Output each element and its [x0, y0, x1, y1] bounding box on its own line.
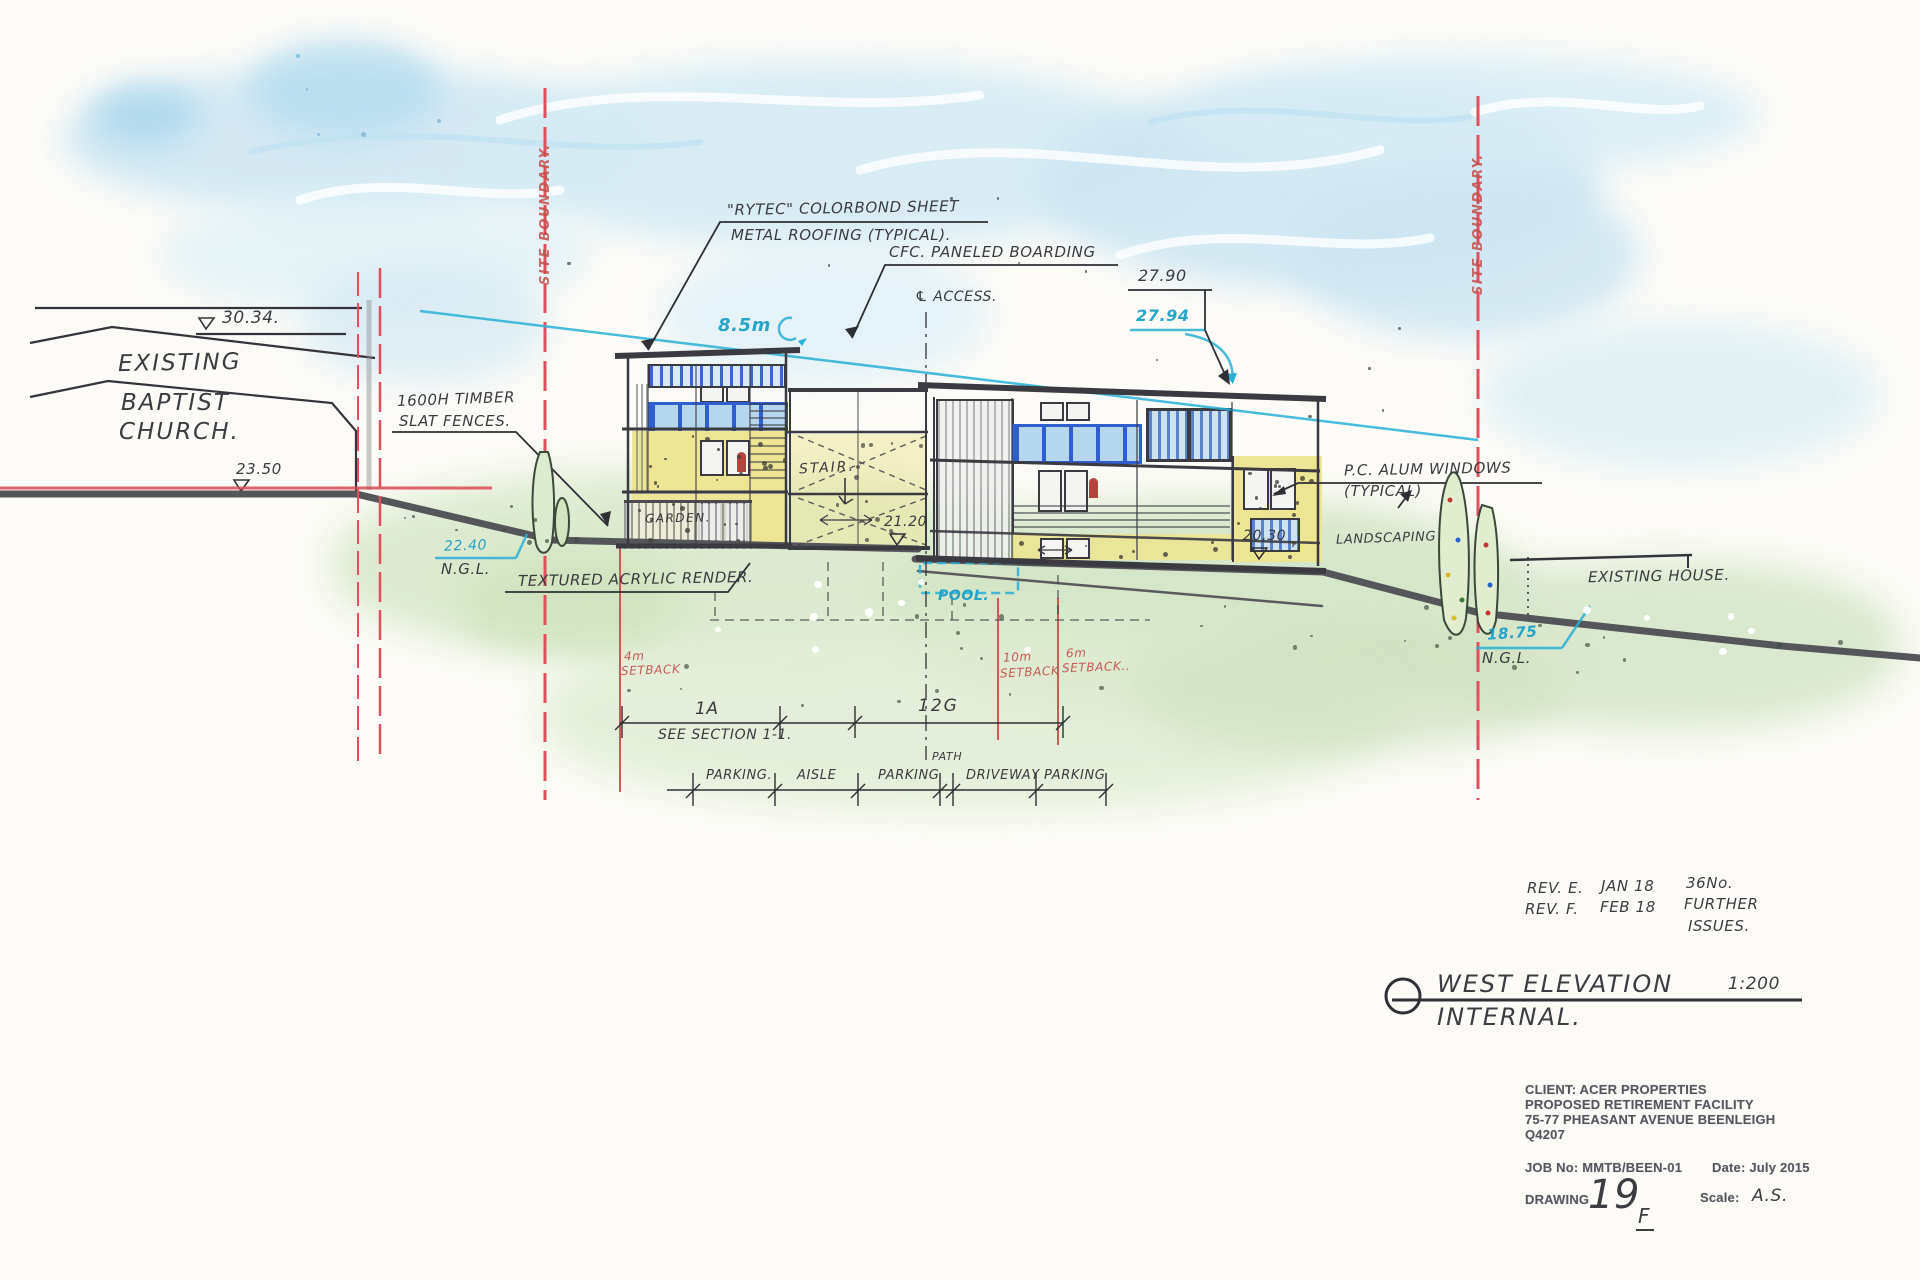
- paint-speckle: [574, 537, 579, 542]
- ground-wash: [1430, 560, 1900, 730]
- building2-clad-band: [936, 399, 1014, 561]
- titleblock-scale-label: Scale:: [1700, 1190, 1740, 1205]
- paint-speckle: [997, 197, 999, 199]
- church-ground-level: 23.50: [236, 460, 282, 478]
- revision-0-rev: REV. E.: [1527, 879, 1583, 897]
- paint-speckle: [1018, 262, 1020, 264]
- paint-speckle: [1424, 605, 1429, 610]
- paint-speckle: [534, 518, 537, 521]
- paint-speckle: [1085, 270, 1088, 273]
- pool-label: POOL.: [938, 588, 989, 604]
- windows-note-line2: (TYPICAL): [1344, 482, 1422, 500]
- setback-6m-line1: 6m: [1066, 646, 1087, 661]
- sky-streaks: [250, 111, 1470, 152]
- revision-0-date: JAN 18: [1601, 877, 1654, 895]
- roof-note-line1: "RYTEC" COLORBOND SHEET: [727, 197, 959, 219]
- paint-speckle: [684, 664, 689, 669]
- building2-mid-window: [1038, 470, 1062, 512]
- building2-panel-window: [1243, 468, 1269, 510]
- basement-outline: [710, 562, 1150, 620]
- drawing-scale: 1:200: [1728, 974, 1780, 994]
- revision-1-note2: ISSUES.: [1688, 917, 1750, 935]
- setback-6m-line2: SETBACK..: [1062, 659, 1131, 675]
- sky-wash: [300, 265, 550, 385]
- titleblock-drawing-label: DRAWING: [1525, 1192, 1589, 1207]
- ground-wash: [460, 550, 680, 650]
- paint-speckle: [545, 539, 549, 543]
- paint-speckle: [1308, 415, 1311, 418]
- blue-arrowhead: [1225, 373, 1237, 384]
- sky-wash: [1180, 55, 1760, 175]
- titleblock-project: PROPOSED RETIREMENT FACILITY: [1525, 1097, 1754, 1112]
- paint-speckle: [510, 505, 513, 508]
- church-name-line1: EXISTING: [118, 349, 242, 377]
- height-envelope-label: 8.5m: [718, 315, 771, 336]
- setback-10m-line1: 10m: [1003, 649, 1032, 664]
- stair-label: STAIR.: [799, 459, 856, 478]
- paint-speckle: [814, 581, 821, 588]
- blue-arrowhead: [798, 338, 807, 346]
- paint-speckle: [1099, 686, 1104, 691]
- sky-wash: [470, 60, 1190, 250]
- drawing-number-suffix: F: [1636, 1204, 1654, 1231]
- cloud-strokes: [300, 95, 1700, 255]
- paint-speckle: [527, 540, 532, 545]
- titleblock-date: Date: July 2015: [1712, 1160, 1810, 1175]
- paint-speckle: [1398, 327, 1401, 330]
- sky-wash: [90, 85, 200, 145]
- titleblock-postcode: Q4207: [1525, 1127, 1565, 1142]
- building2-ground-window: [1040, 538, 1064, 559]
- paint-speckle: [1200, 625, 1203, 628]
- parking-label-5: PARKING: [1044, 768, 1105, 783]
- building1-top-window: [700, 386, 724, 403]
- paint-speckle: [296, 54, 300, 58]
- paint-speckle: [567, 262, 570, 265]
- revision-1-rev: REV. F.: [1525, 900, 1579, 918]
- rotation-arrow-icon: [779, 318, 796, 340]
- paint-speckle: [455, 529, 457, 531]
- building2-panel-window: [1270, 468, 1296, 510]
- revision-0-note: 36No.: [1686, 874, 1733, 892]
- paint-speckle: [980, 657, 983, 660]
- paint-speckle: [801, 704, 804, 707]
- paint-speckle: [404, 517, 406, 519]
- ngl-right-value: 18.75: [1486, 622, 1538, 643]
- paint-speckle: [412, 515, 415, 518]
- building2-mid-window: [1064, 470, 1088, 512]
- sky-wash: [1040, 80, 1600, 290]
- sky-wash: [1480, 320, 1880, 470]
- paint-speckle: [865, 608, 873, 616]
- sky-wash: [160, 195, 590, 315]
- paint-speckle: [1719, 648, 1726, 655]
- level-2030: 20.30: [1243, 528, 1286, 544]
- drawing-title: WEST ELEVATION: [1437, 970, 1673, 998]
- dimension-seg2: 12G: [918, 696, 959, 716]
- building2-corner-window: [1188, 408, 1232, 462]
- building1-window-band: [648, 402, 788, 434]
- render-note: TEXTURED ACRYLIC RENDER.: [518, 568, 754, 590]
- paint-speckle: [898, 600, 904, 606]
- paint-speckle: [1538, 624, 1541, 627]
- sky-wash: [60, 65, 640, 215]
- paint-speckle: [503, 528, 506, 531]
- church-ridge-level: 30.34.: [222, 308, 280, 328]
- paint-speckle: [1838, 640, 1843, 645]
- paint-speckle: [960, 647, 963, 650]
- paint-speckle: [715, 627, 720, 632]
- paint-speckle: [1404, 640, 1406, 642]
- building1-mid-window: [700, 440, 724, 476]
- site-boundary-label-left: SITE BOUNDARY.: [538, 143, 553, 285]
- paint-speckle: [1603, 636, 1606, 639]
- person-figure: [1089, 478, 1098, 498]
- titleblock-address: 75-77 PHEASANT AVENUE BEENLEIGH: [1525, 1112, 1775, 1127]
- building2-top-window: [1040, 402, 1064, 421]
- paint-speckle: [1156, 359, 1158, 361]
- parking-label-3: PATH: [932, 750, 962, 763]
- paint-speckle: [935, 689, 939, 693]
- paint-speckle: [812, 646, 819, 653]
- roof-note-line2: METAL ROOFING (TYPICAL).: [731, 226, 951, 244]
- drawing-subtitle: INTERNAL.: [1437, 1003, 1582, 1031]
- paint-speckle: [810, 613, 818, 621]
- titleblock-scale-value: A.S.: [1752, 1186, 1788, 1206]
- paint-speckle: [1770, 642, 1772, 644]
- titleblock-client: CLIENT: ACER PROPERTIES: [1525, 1082, 1707, 1097]
- paint-speckle: [915, 614, 919, 618]
- building1-hatch-column: [636, 384, 650, 492]
- ngl-right-label: N.G.L.: [1482, 649, 1531, 667]
- level-2120: 21.20: [884, 514, 927, 530]
- sky-wash: [1290, 170, 1640, 340]
- paint-speckle: [918, 579, 924, 585]
- elevation-drawing-sheet: SITE BOUNDARY. SITE BOUNDARY. 30.34. EXI…: [0, 0, 1920, 1280]
- setback-4m-line1: 4m: [624, 649, 645, 664]
- paint-speckle: [828, 264, 831, 267]
- ngl-left-label: N.G.L.: [441, 560, 490, 578]
- paint-speckle: [1777, 643, 1782, 648]
- paint-speckle: [1576, 671, 1579, 674]
- building1-top-window: [726, 386, 750, 403]
- church-name-line2: BAPTIST: [121, 390, 230, 416]
- building2-ground-window: [1066, 538, 1090, 559]
- ngl-left-value: 22.40: [444, 537, 488, 554]
- paint-speckle: [1728, 613, 1735, 620]
- ground-wash: [540, 620, 1390, 810]
- paint-speckle: [1310, 635, 1313, 638]
- access-note: ℄ ACCESS.: [915, 289, 997, 305]
- sky-wash: [250, 40, 440, 140]
- paint-speckle: [1224, 605, 1227, 608]
- fence-note-line1: 1600H TIMBER: [397, 388, 516, 410]
- revision-1-date: FEB 18: [1600, 898, 1656, 916]
- windows-note-line1: P.C. ALUM WINDOWS: [1344, 459, 1512, 480]
- paint-speckle: [1448, 636, 1452, 640]
- garden-label: GARDEN.: [645, 510, 711, 525]
- building2-corner-window: [1146, 408, 1190, 462]
- building2-window-band: [1012, 424, 1142, 464]
- paint-speckle: [306, 88, 308, 90]
- section-note: SEE SECTION 1-1.: [658, 727, 792, 743]
- building2-top-window: [1066, 402, 1090, 421]
- fence-note-line2: SLAT FENCES.: [399, 412, 511, 430]
- paint-speckle: [361, 132, 365, 136]
- parking-label-2: PARKING: [878, 768, 939, 783]
- paint-speckle: [1748, 628, 1754, 634]
- existing-house-outline: [1510, 555, 1692, 618]
- paint-speckle: [1293, 645, 1297, 649]
- paint-speckle: [1382, 409, 1384, 411]
- boarding-note: CFC. PANELED BOARDING: [889, 243, 1096, 261]
- paint-speckle: [1585, 643, 1590, 648]
- paint-speckle: [1435, 644, 1439, 648]
- paint-speckle: [1368, 367, 1371, 370]
- paint-speckle: [1009, 693, 1012, 696]
- parking-label-0: PARKING.: [706, 768, 772, 783]
- paint-speckle: [1583, 606, 1591, 614]
- paint-speckle: [956, 631, 960, 635]
- paint-speckle: [897, 700, 901, 704]
- paint-speckle: [1623, 658, 1627, 662]
- roof-level-black: 27.90: [1138, 266, 1187, 285]
- parking-label-4: DRIVEWAY: [966, 768, 1040, 783]
- paint-speckle: [999, 614, 1004, 619]
- existing-house-label: EXISTING HOUSE.: [1588, 566, 1730, 586]
- drawing-number: 19: [1588, 1172, 1640, 1218]
- paint-speckle: [317, 133, 320, 136]
- church-name-line3: CHURCH.: [119, 419, 240, 445]
- parking-label-1: AISLE: [797, 768, 836, 783]
- setback-10m-line2: SETBACK: [1000, 663, 1060, 680]
- paint-speckle: [680, 688, 682, 690]
- dimension-seg1: 1A: [695, 699, 719, 719]
- revision-1-note: FURTHER: [1684, 895, 1759, 913]
- landscaping-note: LANDSCAPING: [1336, 529, 1437, 547]
- paint-speckle: [437, 119, 441, 123]
- flower-dots: [1446, 498, 1493, 621]
- setback-4m-line2: SETBACK: [621, 662, 681, 678]
- site-boundary-label-right: SITE BOUNDARY.: [1471, 153, 1486, 295]
- person-figure: [737, 452, 746, 472]
- paint-speckle: [627, 689, 630, 692]
- building1-clerestory-glazing: [648, 364, 786, 388]
- roof-level-blue: 27.94: [1136, 306, 1190, 325]
- paint-speckle: [1644, 615, 1650, 621]
